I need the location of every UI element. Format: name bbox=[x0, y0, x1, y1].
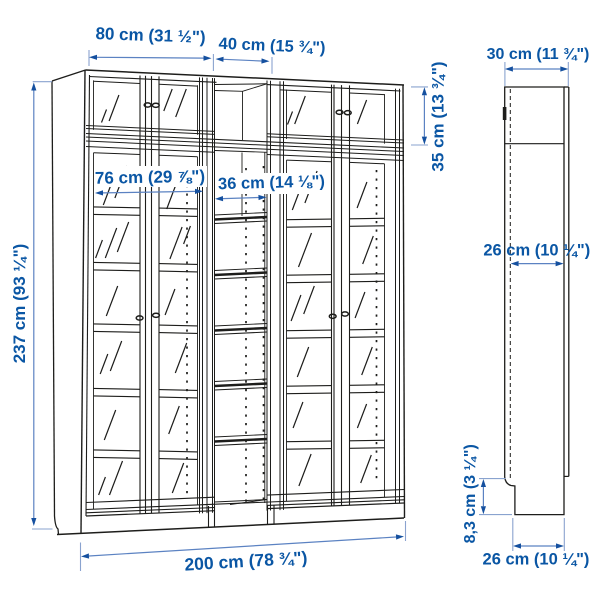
svg-text:76 cm (29 ⅞"): 76 cm (29 ⅞") bbox=[95, 167, 205, 188]
svg-text:30 cm (11 ¾"): 30 cm (11 ¾") bbox=[487, 46, 590, 63]
svg-text:36 cm (14 ⅛"): 36 cm (14 ⅛") bbox=[218, 172, 325, 193]
svg-text:35 cm (13 ¾"): 35 cm (13 ¾") bbox=[428, 61, 447, 171]
svg-text:26 cm (10 ¼"): 26 cm (10 ¼") bbox=[483, 550, 590, 568]
svg-text:237 cm (93 ¼"): 237 cm (93 ¼") bbox=[10, 244, 29, 364]
svg-text:26 cm (10 ¼"): 26 cm (10 ¼") bbox=[483, 242, 590, 260]
svg-text:80 cm (31 ½"): 80 cm (31 ½") bbox=[95, 24, 206, 47]
svg-text:8,3 cm (3 ¼"): 8,3 cm (3 ¼") bbox=[462, 444, 479, 543]
